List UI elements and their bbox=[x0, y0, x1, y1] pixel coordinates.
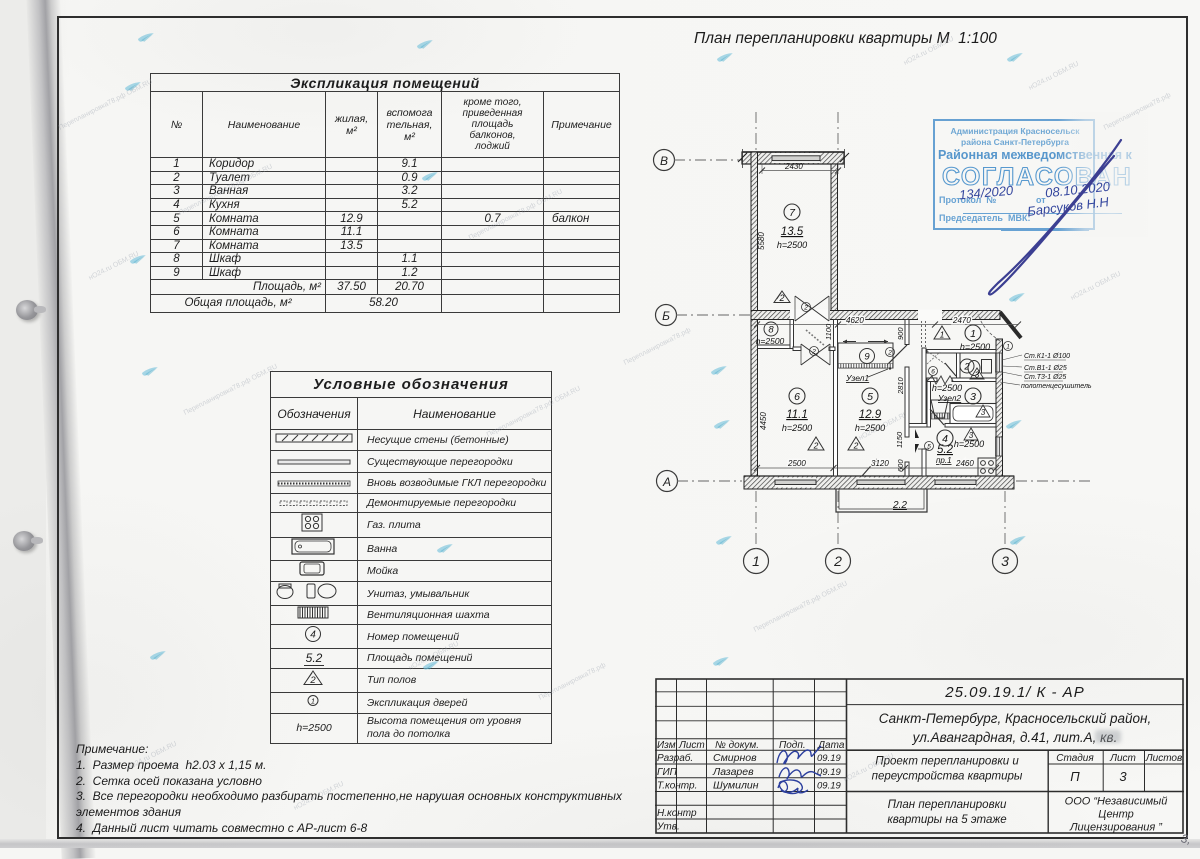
svg-text:1: 1 bbox=[970, 328, 976, 340]
svg-text:12.9: 12.9 bbox=[859, 409, 882, 421]
svg-text:Перепланировка78.рф ОБМ.RU: Перепланировка78.рф ОБМ.RU bbox=[468, 188, 564, 242]
svg-text:В: В bbox=[660, 154, 668, 168]
svg-text:3120: 3120 bbox=[871, 459, 889, 468]
svg-text:нО24.ru ОБМ.RU: нО24.ru ОБМ.RU bbox=[903, 36, 955, 67]
svg-text:5.2: 5.2 bbox=[937, 444, 954, 456]
svg-text:Ст.К1-1 Ø100: Ст.К1-1 Ø100 bbox=[1024, 353, 1070, 360]
svg-text:2500: 2500 bbox=[787, 459, 806, 468]
svg-text:1150: 1150 bbox=[895, 431, 904, 448]
svg-text:2: 2 bbox=[803, 305, 808, 312]
svg-text:Перепланировка78.рф: Перепланировка78.рф bbox=[1103, 92, 1173, 132]
svg-text:1: 1 bbox=[752, 553, 760, 569]
svg-text:5: 5 bbox=[867, 391, 873, 403]
svg-text:Перепланировка78.рф ОБМ.RU: Перепланировка78.рф ОБМ.RU bbox=[178, 163, 274, 217]
svg-text:5580: 5580 bbox=[757, 232, 766, 250]
svg-text:пр.1: пр.1 bbox=[936, 456, 952, 465]
svg-text:Перепланировка78.рф ОБМ.RU: Перепланировка78.рф ОБМ.RU bbox=[753, 580, 849, 634]
svg-text:h=2500: h=2500 bbox=[777, 240, 807, 250]
svg-text:5: 5 bbox=[927, 444, 931, 451]
svg-text:2470: 2470 bbox=[952, 316, 971, 325]
svg-text:А: А bbox=[662, 475, 671, 489]
svg-text:h=2500: h=2500 bbox=[756, 336, 785, 346]
svg-text:2: 2 bbox=[963, 362, 970, 373]
svg-text:нО24.ru ОБМ.RU: нО24.ru ОБМ.RU bbox=[1028, 61, 1080, 92]
svg-text:нО24.ru ОБМ.RU: нО24.ru ОБМ.RU bbox=[126, 741, 178, 772]
svg-text:нО24.ru ОБМ.RU: нО24.ru ОБМ.RU bbox=[408, 641, 460, 672]
svg-text:Б: Б bbox=[662, 309, 670, 323]
svg-text:1: 1 bbox=[940, 330, 945, 340]
svg-text:1: 1 bbox=[1006, 344, 1010, 351]
svg-text:h=2500: h=2500 bbox=[954, 439, 984, 449]
svg-text:h=2500: h=2500 bbox=[932, 383, 962, 393]
svg-text:2: 2 bbox=[887, 350, 892, 357]
svg-text:8: 8 bbox=[768, 325, 774, 336]
svg-text:3: 3 bbox=[981, 408, 986, 417]
svg-text:4450: 4450 bbox=[759, 412, 768, 430]
svg-text:Перепланировка78.рф ОБМ.RU: Перепланировка78.рф ОБМ.RU bbox=[486, 385, 582, 439]
svg-text:13.5: 13.5 bbox=[781, 226, 804, 238]
svg-text:Узел1: Узел1 bbox=[845, 373, 869, 383]
svg-text:900: 900 bbox=[896, 327, 905, 340]
svg-text:2810: 2810 bbox=[896, 376, 905, 395]
svg-text:нО24.ru ОБМ.RU: нО24.ru ОБМ.RU bbox=[88, 251, 140, 282]
svg-text:2460: 2460 bbox=[955, 459, 974, 468]
svg-text:Ст.Т3-1 Ø25: Ст.Т3-1 Ø25 bbox=[1024, 374, 1066, 381]
svg-text:3: 3 bbox=[969, 431, 974, 440]
svg-text:Перепланировка78.рф ОБМ.RU: Перепланировка78.рф ОБМ.RU bbox=[183, 363, 279, 417]
svg-text:3: 3 bbox=[975, 371, 980, 380]
svg-text:Ст.В1-1 Ø25: Ст.В1-1 Ø25 bbox=[1024, 365, 1067, 372]
svg-text:2: 2 bbox=[811, 349, 816, 356]
svg-text:2: 2 bbox=[833, 553, 842, 569]
svg-text:2: 2 bbox=[813, 441, 819, 451]
svg-text:нО24.ru ОБМ.RU: нО24.ru ОБМ.RU bbox=[843, 753, 895, 784]
svg-text:2: 2 bbox=[853, 441, 859, 451]
svg-text:нО24.ru ОБМ.RU: нО24.ru ОБМ.RU bbox=[1070, 271, 1122, 302]
svg-text:2430: 2430 bbox=[784, 162, 803, 171]
svg-text:h=2500: h=2500 bbox=[782, 423, 812, 433]
svg-text:3: 3 bbox=[1001, 553, 1009, 569]
svg-text:7: 7 bbox=[789, 207, 796, 219]
svg-text:2: 2 bbox=[778, 293, 784, 303]
svg-text:6: 6 bbox=[794, 391, 800, 403]
svg-text:полотенцесушитель: полотенцесушитель bbox=[1021, 383, 1092, 390]
svg-text:Перепланировка78.рф: Перепланировка78.рф bbox=[623, 327, 693, 367]
svg-text:3: 3 bbox=[970, 391, 976, 403]
svg-text:4620: 4620 bbox=[846, 316, 864, 325]
svg-text:2.2: 2.2 bbox=[892, 500, 907, 511]
svg-text:h=2500: h=2500 bbox=[960, 342, 990, 352]
svg-text:600: 600 bbox=[896, 459, 905, 472]
svg-text:Перепланировка78.рф ОБМ.RU: Перепланировка78.рф ОБМ.RU bbox=[58, 78, 154, 132]
svg-text:9: 9 bbox=[864, 352, 870, 363]
svg-text:нО24.ru ОБМ.RU: нО24.ru ОБМ.RU bbox=[293, 781, 345, 812]
svg-text:1100: 1100 bbox=[824, 323, 833, 340]
svg-text:Перепланировка78.рф: Перепланировка78.рф bbox=[538, 662, 608, 702]
svg-text:Узел2: Узел2 bbox=[937, 393, 961, 403]
svg-text:6: 6 bbox=[931, 369, 935, 376]
svg-text:h=2500: h=2500 bbox=[855, 423, 885, 433]
svg-text:11.1: 11.1 bbox=[786, 409, 808, 421]
